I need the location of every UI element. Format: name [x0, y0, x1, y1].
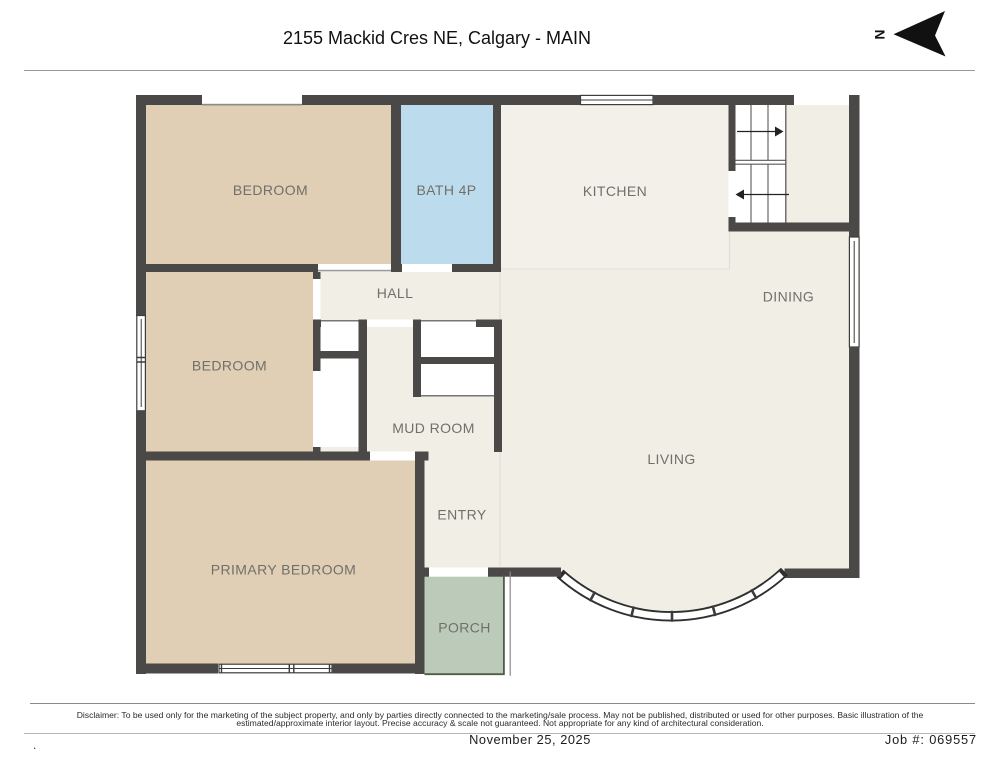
svg-text:BATH 4P: BATH 4P	[416, 182, 476, 198]
svg-text:PRIMARY BEDROOM: PRIMARY BEDROOM	[211, 562, 357, 578]
svg-text:PORCH: PORCH	[438, 620, 491, 636]
svg-text:BEDROOM: BEDROOM	[233, 182, 308, 198]
svg-text:MUD ROOM: MUD ROOM	[392, 420, 475, 436]
svg-text:KITCHEN: KITCHEN	[583, 183, 647, 199]
svg-text:DINING: DINING	[763, 289, 814, 305]
svg-text:HALL: HALL	[377, 285, 414, 301]
svg-text:LIVING: LIVING	[647, 451, 695, 467]
svg-text:ENTRY: ENTRY	[437, 507, 486, 523]
svg-text:BEDROOM: BEDROOM	[192, 358, 267, 374]
